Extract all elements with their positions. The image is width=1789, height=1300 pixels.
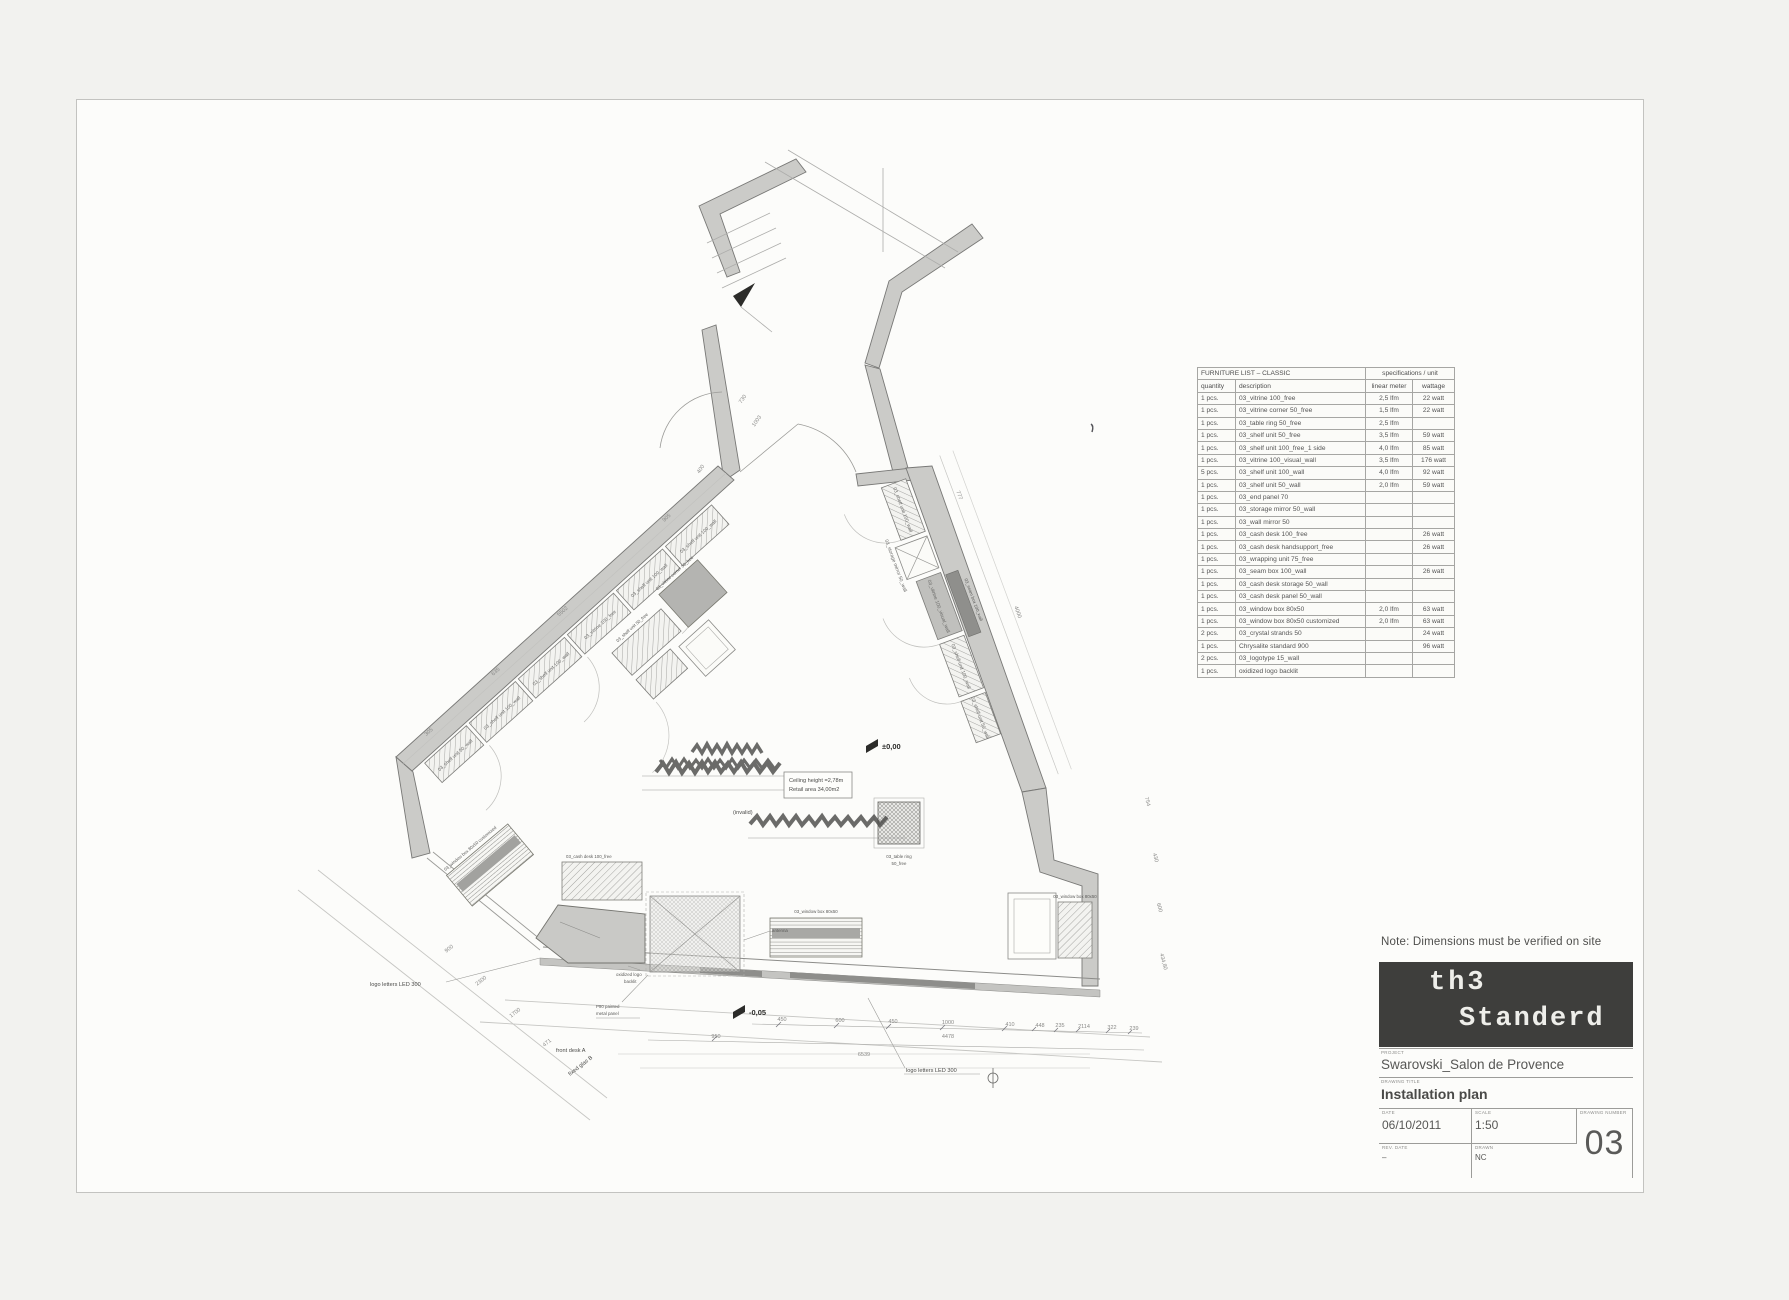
dim: 239 [1129,1026,1138,1032]
project-label: PROJECT [1379,1048,1633,1055]
furniture-cell-watt: 63 watt [1413,603,1455,615]
dim-430: 430 [1151,853,1159,863]
dim-600: 600 [1155,903,1163,913]
furniture-cell-watt: 59 watt [1413,429,1455,441]
furniture-cell-qty: 1 pcs. [1198,591,1236,603]
level-front-text: -0,05 [749,1008,766,1017]
pen-artifact [1091,424,1093,432]
furniture-cell-qty: 1 pcs. [1198,640,1236,652]
furniture-cell-lfm [1366,628,1413,640]
furniture-row: 5 pcs.03_shelf unit 100_wall4,0 lfm92 wa… [1198,467,1455,479]
dim: 448 [1035,1023,1044,1029]
furniture-cell-watt [1413,553,1455,565]
furniture-cell-qty: 1 pcs. [1198,454,1236,466]
furniture-cell-lfm: 1,5 lfm [1366,405,1413,417]
furniture-cell-watt [1413,578,1455,590]
furniture-cell-qty: 1 pcs. [1198,429,1236,441]
wall-left-corner [396,757,430,858]
furniture-row: 1 pcs.03_shelf unit 50_free3,5 lfm59 wat… [1198,429,1455,441]
dim-754: 754 [1143,797,1151,807]
furniture-row: 1 pcs.03_window box 80x502,0 lfm63 watt [1198,603,1455,615]
dim: 410 [1005,1022,1014,1028]
drawing-number-label: DRAWING NUMBER [1577,1109,1632,1115]
dim-730: 730 [738,394,748,405]
fixed-glas-label: fixed glas B [568,1055,595,1078]
ceiling-note-box [784,772,852,798]
furniture-cell-watt: 85 watt [1413,442,1455,454]
furniture-cell-desc: 03_table ring 50_free [1236,417,1366,429]
furniture-cell-watt: 92 watt [1413,467,1455,479]
section-mark [988,1068,998,1088]
dim-400: 400 [696,464,706,475]
furniture-cell-desc: 03_storage mirror 50_wall [1236,504,1366,516]
furniture-cell-desc: 03_vitrine 100_visual_wall [1236,454,1366,466]
dim-471: 471 [542,1038,553,1048]
date-cell: DATE 06/10/2011 [1379,1109,1472,1143]
furniture-cell-watt [1413,652,1455,664]
logo-line-2: Standerd [1459,1004,1605,1034]
furniture-cell-lfm: 2,0 lfm [1366,615,1413,627]
furniture-row: 1 pcs.03_window box 80x50 customized2,0 … [1198,615,1455,627]
date-value: 06/10/2011 [1379,1115,1471,1132]
title-block-grid: DATE 06/10/2011 SCALE 1:50 DRAWING NUMBE… [1379,1108,1633,1178]
rev-value: – [1379,1150,1471,1162]
furniture-row: 1 pcs.03_shelf unit 100_free_1 side4,0 l… [1198,442,1455,454]
furniture-row: 1 pcs.Chrysalite standard 90096 watt [1198,640,1455,652]
scale-cell: SCALE 1:50 [1472,1109,1577,1143]
furniture-cell-watt: 26 watt [1413,566,1455,578]
window-display-left: 03_window box 80x50 customized [441,818,533,906]
furniture-cell-lfm [1366,591,1413,603]
furniture-cell-watt: 176 watt [1413,454,1455,466]
level-marker-zero: ±0,00 [866,739,901,753]
furniture-list-header: FURNITURE LIST – CLASSIC specifications … [1198,368,1455,393]
furniture-cell-watt [1413,665,1455,677]
furniture-cell-qty: 2 pcs. [1198,652,1236,664]
furniture-cell-qty: 1 pcs. [1198,504,1236,516]
dim-6539: 6539 [858,1052,870,1058]
furniture-cell-lfm [1366,578,1413,590]
project-name: Swarovski_Salon de Provence [1379,1055,1633,1077]
table-ring-label-1: 03_table ring [886,854,912,859]
furniture-cell-desc: 03_cash desk handsupport_free [1236,541,1366,553]
furniture-cell-qty: 1 pcs. [1198,405,1236,417]
invalid-note: (invalid) [733,810,753,816]
level-marker-front: -0,05 [733,1005,766,1019]
dim-4478: 4478 [942,1034,954,1040]
invalid-dim-lines [642,776,905,838]
antenna-label: antenna [772,928,788,933]
furniture-cell-qty: 1 pcs. [1198,541,1236,553]
furniture-row: 1 pcs.03_storage mirror 50_wall [1198,504,1455,516]
dim: 600 [835,1018,844,1024]
furniture-cell-lfm [1366,665,1413,677]
furniture-cell-watt [1413,504,1455,516]
furniture-cell-desc: 03_wrapping unit 75_free [1236,553,1366,565]
p90-label-1: P90 painted [596,1004,620,1009]
furniture-cell-lfm [1366,652,1413,664]
furniture-row: 1 pcs.03_shelf unit 50_wall2,0 lfm59 wat… [1198,479,1455,491]
window-box-label-2: 03_window box 80x50 [1053,894,1097,899]
furniture-cell-desc: 03_crystal strands 50 [1236,628,1366,640]
furniture-row: 1 pcs.03_table ring 50_free2,5 lfm [1198,417,1455,429]
furniture-cell-watt [1413,516,1455,528]
dim: 1000 [942,1020,954,1026]
dim: 450 [888,1019,897,1025]
furniture-cell-qty: 5 pcs. [1198,467,1236,479]
furniture-row: 1 pcs.03_end panel 70 [1198,491,1455,503]
drawn-value: NC [1472,1150,1577,1162]
furniture-cell-desc: 03_cash desk 100_free [1236,529,1366,541]
drawing-number-value: 03 [1585,1124,1625,1163]
furniture-row: 1 pcs.oxidized logo backlit [1198,665,1455,677]
furniture-row: 1 pcs.03_cash desk handsupport_free26 wa… [1198,541,1455,553]
furniture-cell-lfm: 2,0 lfm [1366,603,1413,615]
furniture-cell-qty: 1 pcs. [1198,491,1236,503]
spec-header: specifications / unit [1366,368,1455,380]
furniture-cell-desc: 03_cash desk storage 50_wall [1236,578,1366,590]
furniture-cell-lfm: 4,0 lfm [1366,442,1413,454]
dim: 450 [777,1017,786,1023]
oxidized-label-1: oxidized logo [616,972,642,977]
furniture-cell-desc: 03_shelf unit 50_wall [1236,479,1366,491]
furniture-cell-lfm [1366,640,1413,652]
furniture-cell-lfm: 2,5 lfm [1366,392,1413,404]
furniture-list-table: FURNITURE LIST – CLASSIC specifications … [1197,367,1455,678]
furniture-cell-watt: 26 watt [1413,541,1455,553]
furniture-cell-lfm: 2,5 lfm [1366,417,1413,429]
scale-value: 1:50 [1472,1115,1576,1132]
site-verification-note: Note: Dimensions must be verified on sit… [1381,936,1601,948]
furniture-row: 1 pcs.03_vitrine corner 50_free1,5 lfm22… [1198,405,1455,417]
dim-900: 900 [444,944,455,954]
table-ring-label-2: 50_free [892,861,907,866]
furniture-cell-watt: 24 watt [1413,628,1455,640]
logo-line-1: th3 [1429,968,1487,998]
furniture-cell-desc: Chrysalite standard 900 [1236,640,1366,652]
furniture-cell-lfm [1366,504,1413,516]
logo-led-left-label: logo letters LED 300 [370,982,421,988]
furniture-cell-lfm [1366,541,1413,553]
furniture-cell-qty: 1 pcs. [1198,417,1236,429]
col-wattage: wattage [1413,380,1455,392]
furniture-cell-watt: 59 watt [1413,479,1455,491]
col-quantity: quantity [1198,380,1236,392]
furniture-cell-desc: 03_end panel 70 [1236,491,1366,503]
wall-corridor-left [702,325,740,481]
company-logo: th3 Standerd [1379,962,1633,1047]
furniture-row: 1 pcs.03_wrapping unit 75_free [1198,553,1455,565]
oxidized-label-2: backlit [624,979,637,984]
furniture-list-title: FURNITURE LIST – CLASSIC [1198,368,1366,380]
scanned-drawing-page: { "sheet": { "note": "Note: Dimensions m… [0,0,1789,1300]
front-desk-label: front desk A [556,1048,586,1054]
furniture-cell-lfm [1366,553,1413,565]
p90-label-2: metal panel [596,1011,619,1016]
furniture-cell-watt: 22 watt [1413,392,1455,404]
cash-desk-label: 03_cash desk 100_free [566,854,612,859]
furniture-cell-qty: 1 pcs. [1198,392,1236,404]
furniture-cell-qty: 1 pcs. [1198,603,1236,615]
furniture-row: 1 pcs.03_cash desk 100_free26 watt [1198,529,1455,541]
dim-2300: 2300 [475,975,488,987]
furniture-cell-qty: 1 pcs. [1198,553,1236,565]
furniture-cell-lfm: 3,5 lfm [1366,454,1413,466]
furniture-cell-watt: 22 watt [1413,405,1455,417]
furniture-cell-lfm: 3,5 lfm [1366,429,1413,441]
title-block: PROJECT Swarovski_Salon de Provence DRAW… [1379,1048,1633,1178]
dim-1700: 1700 [509,1007,522,1019]
dim-434: 434,80 [1158,953,1168,971]
col-linear-meter: linear meter [1366,380,1413,392]
door-arcs [660,392,856,472]
furniture-cell-watt [1413,591,1455,603]
furniture-cell-qty: 1 pcs. [1198,479,1236,491]
furniture-cell-desc: 03_window box 80x50 customized [1236,615,1366,627]
furniture-cell-qty: 1 pcs. [1198,442,1236,454]
furniture-cell-qty: 1 pcs. [1198,615,1236,627]
furniture-cell-desc: oxidized logo backlit [1236,665,1366,677]
drawing-number-cell: DRAWING NUMBER 03 [1577,1109,1633,1178]
furniture-cell-desc: 03_shelf unit 50_free [1236,429,1366,441]
furniture-cell-desc: 03_shelf unit 100_free_1 side [1236,442,1366,454]
furniture-cell-desc: 03_window box 80x50 [1236,603,1366,615]
furniture-row: 1 pcs.03_vitrine 100_free2,5 lfm22 watt [1198,392,1455,404]
furniture-cell-lfm [1366,529,1413,541]
furniture-cell-lfm: 2,0 lfm [1366,479,1413,491]
furniture-row: 1 pcs.03_vitrine 100_visual_wall3,5 lfm1… [1198,454,1455,466]
window-box-label: 03_window box 80x50 [794,909,838,914]
dim-1003: 1003 [751,415,763,428]
corridor-lines [707,150,958,332]
furniture-cell-watt: 26 watt [1413,529,1455,541]
dim-950: 950 [711,1034,720,1040]
direction-arrow [733,283,755,307]
furniture-cell-watt [1413,417,1455,429]
furniture-cell-desc: 03_vitrine corner 50_free [1236,405,1366,417]
furniture-cell-qty: 1 pcs. [1198,665,1236,677]
ceiling-height-note: Ceiling height =2,78m [789,778,844,784]
col-description: description [1236,380,1366,392]
logo-led-bottom-label: logo letters LED 300 [906,1068,957,1074]
furniture-cell-desc: 03_wall mirror 50 [1236,516,1366,528]
furniture-cell-desc: 03_vitrine 100_free [1236,392,1366,404]
furniture-cell-desc: 03_shelf unit 100_wall [1236,467,1366,479]
furniture-row: 1 pcs.03_wall mirror 50 [1198,516,1455,528]
furniture-cell-qty: 1 pcs. [1198,516,1236,528]
rev-cell: REV. DATE – [1379,1143,1472,1178]
furniture-cell-watt [1413,491,1455,503]
dim-4000: 4000 [1012,605,1022,619]
furniture-cell-watt: 63 watt [1413,615,1455,627]
furniture-cell-desc: 03_logotype 15_wall [1236,652,1366,664]
storefront [298,852,1162,1120]
dim: 2114 [1078,1024,1090,1030]
right-wall-furniture: 03_shelf unit 100_wall 03_storage mirror… [837,448,1078,812]
furniture-cell-qty: 2 pcs. [1198,628,1236,640]
furniture-row: 2 pcs.03_logotype 15_wall [1198,652,1455,664]
dim: 322 [1107,1025,1116,1031]
wall-right-upper [865,365,908,472]
furniture-cell-desc: 03_cash desk panel 50_wall [1236,591,1366,603]
drawn-cell: DRAWN NC [1472,1143,1577,1178]
furniture-cell-lfm [1366,491,1413,503]
furniture-row: 2 pcs.03_crystal strands 5024 watt [1198,628,1455,640]
level-zero-text: ±0,00 [882,742,901,751]
furniture-cell-qty: 1 pcs. [1198,566,1236,578]
retail-area-note: Retail area 34,00m2 [789,787,839,793]
furniture-cell-lfm: 4,0 lfm [1366,467,1413,479]
furniture-cell-lfm [1366,516,1413,528]
furniture-row: 1 pcs.03_seam box 100_wall26 watt [1198,566,1455,578]
furniture-cell-qty: 1 pcs. [1198,529,1236,541]
furniture-row: 1 pcs.03_cash desk storage 50_wall [1198,578,1455,590]
furniture-cell-lfm [1366,566,1413,578]
furniture-cell-watt: 96 watt [1413,640,1455,652]
furniture-cell-desc: 03_seam box 100_wall [1236,566,1366,578]
drawing-title: Installation plan [1379,1084,1633,1108]
furniture-row: 1 pcs.03_cash desk panel 50_wall [1198,591,1455,603]
furniture-list-body: 1 pcs.03_vitrine 100_free2,5 lfm22 watt1… [1198,392,1455,677]
drawing-title-label: DRAWING TITLE [1379,1077,1633,1084]
dim: 235 [1055,1023,1064,1029]
furniture-cell-qty: 1 pcs. [1198,578,1236,590]
